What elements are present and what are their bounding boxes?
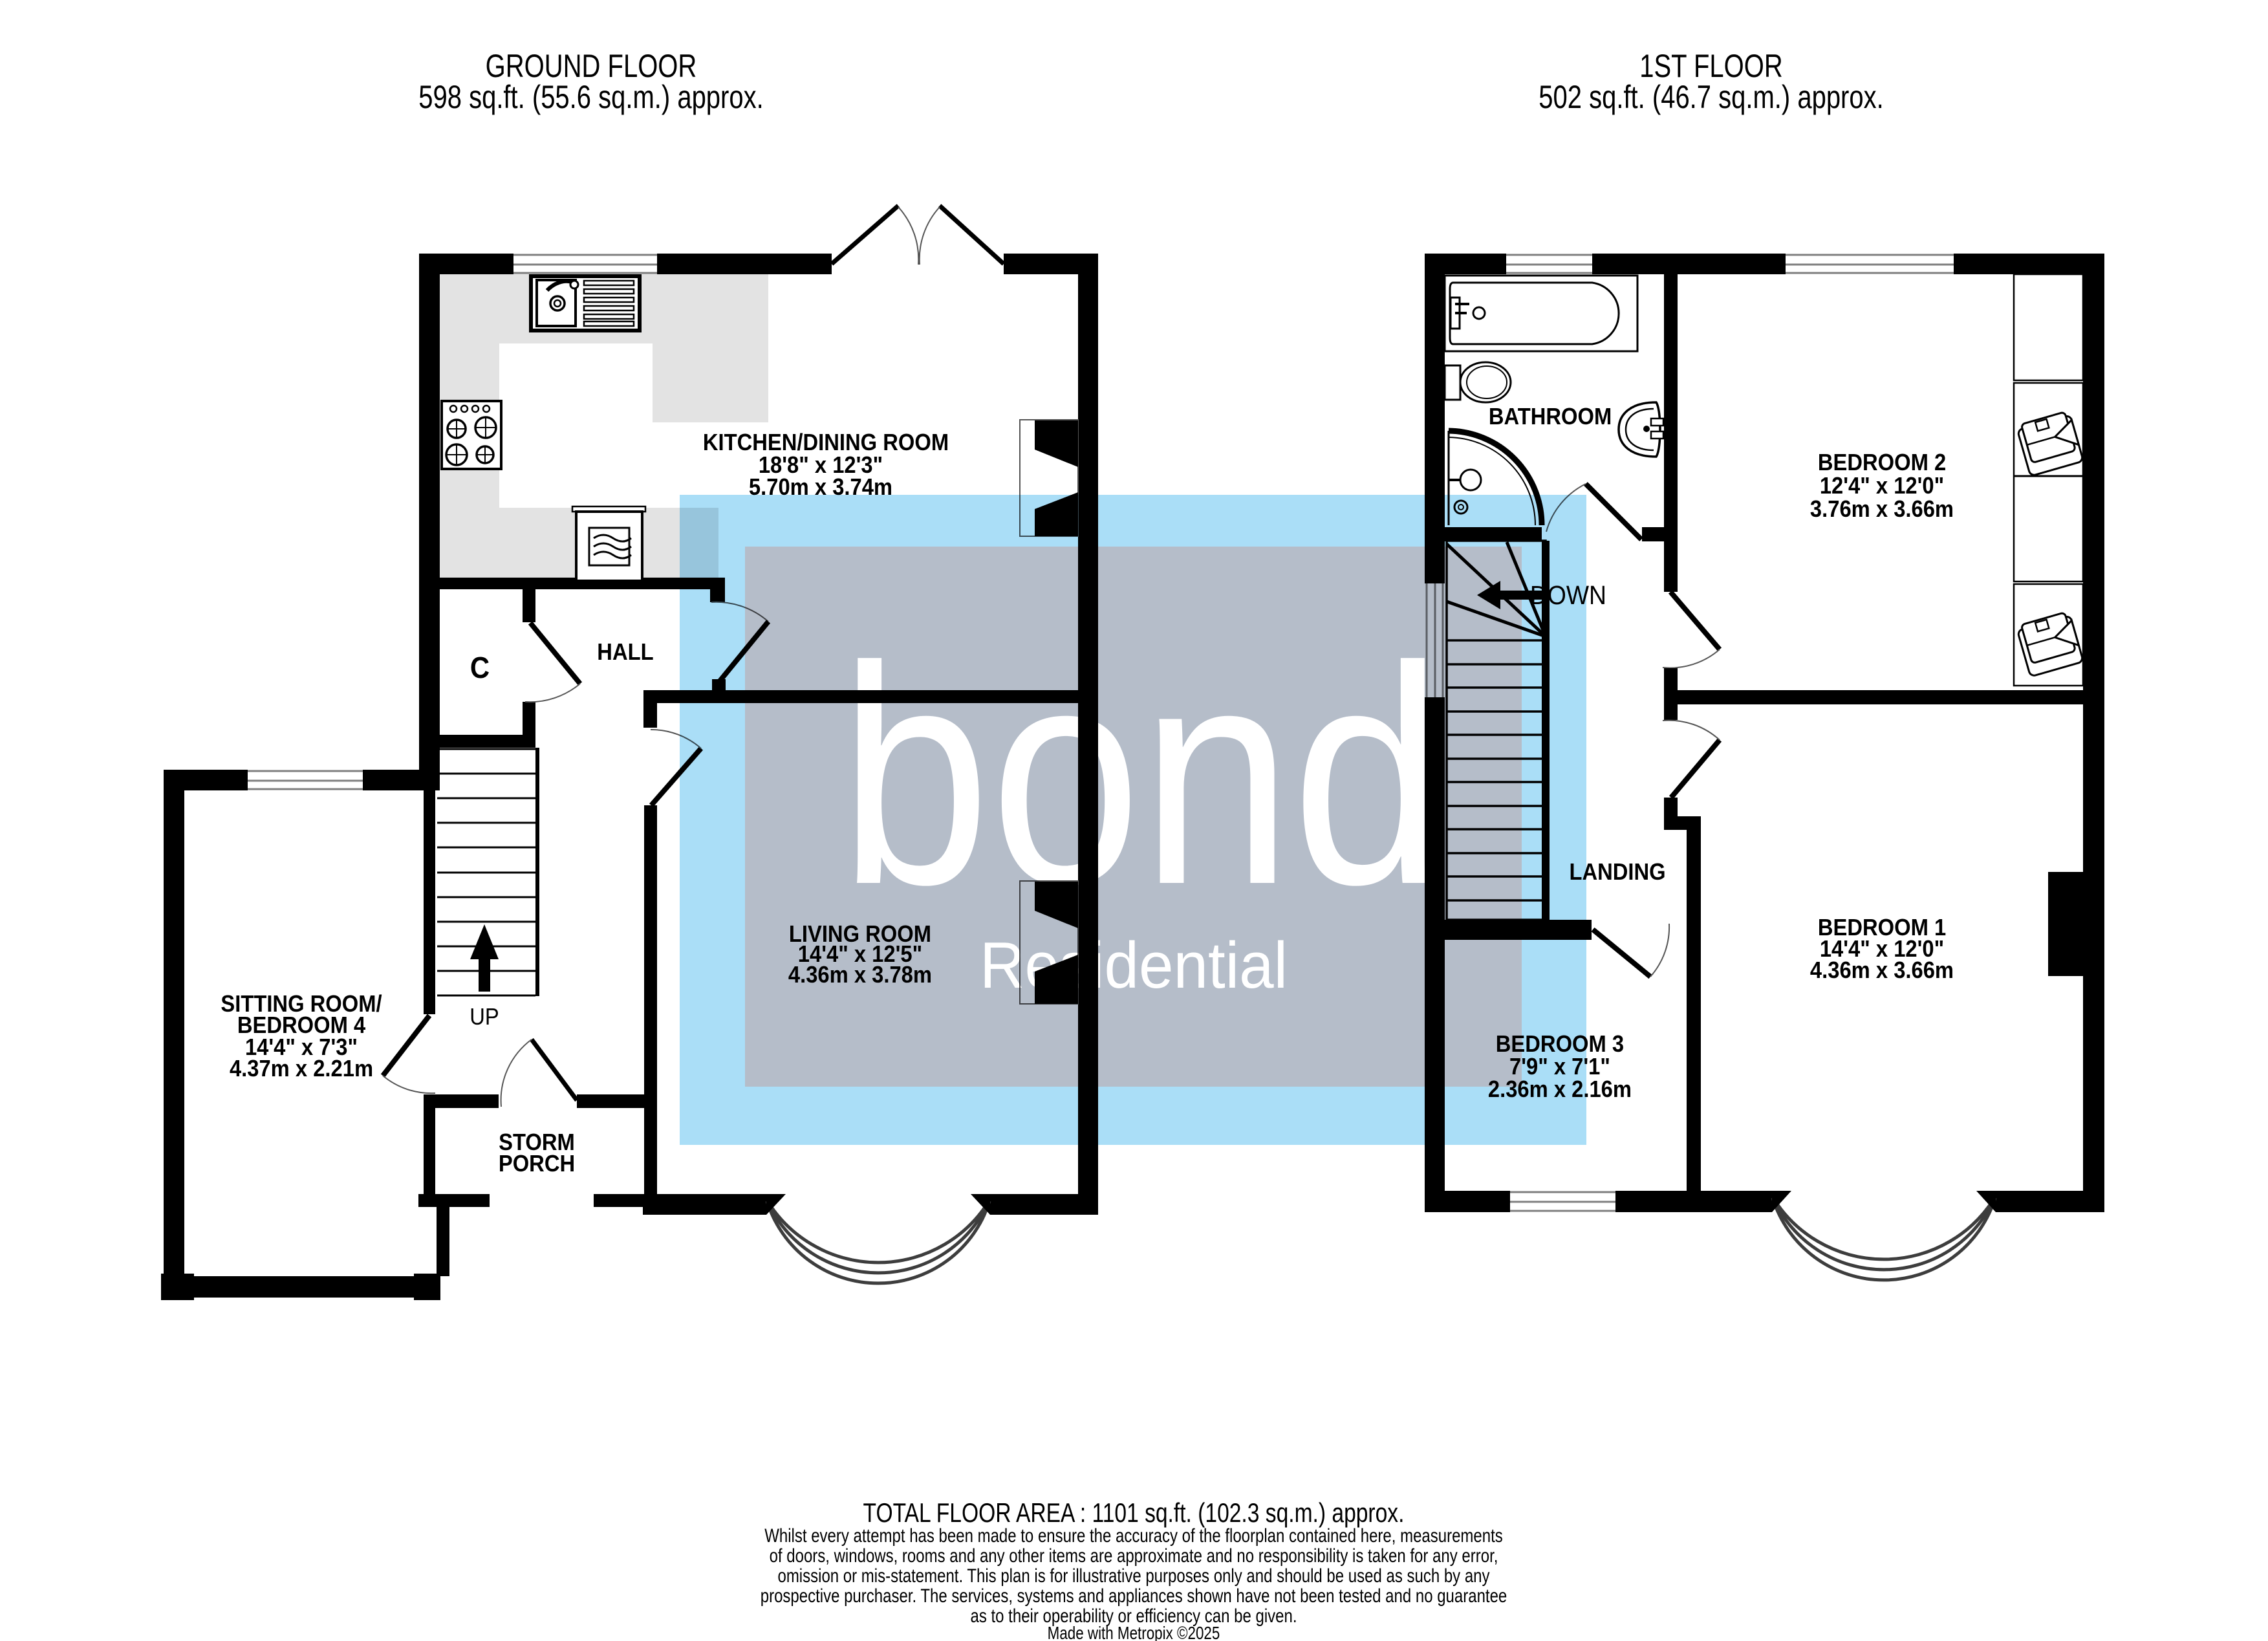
svg-text:bond: bond bbox=[839, 603, 1443, 950]
svg-text:Residential: Residential bbox=[980, 929, 1288, 1002]
